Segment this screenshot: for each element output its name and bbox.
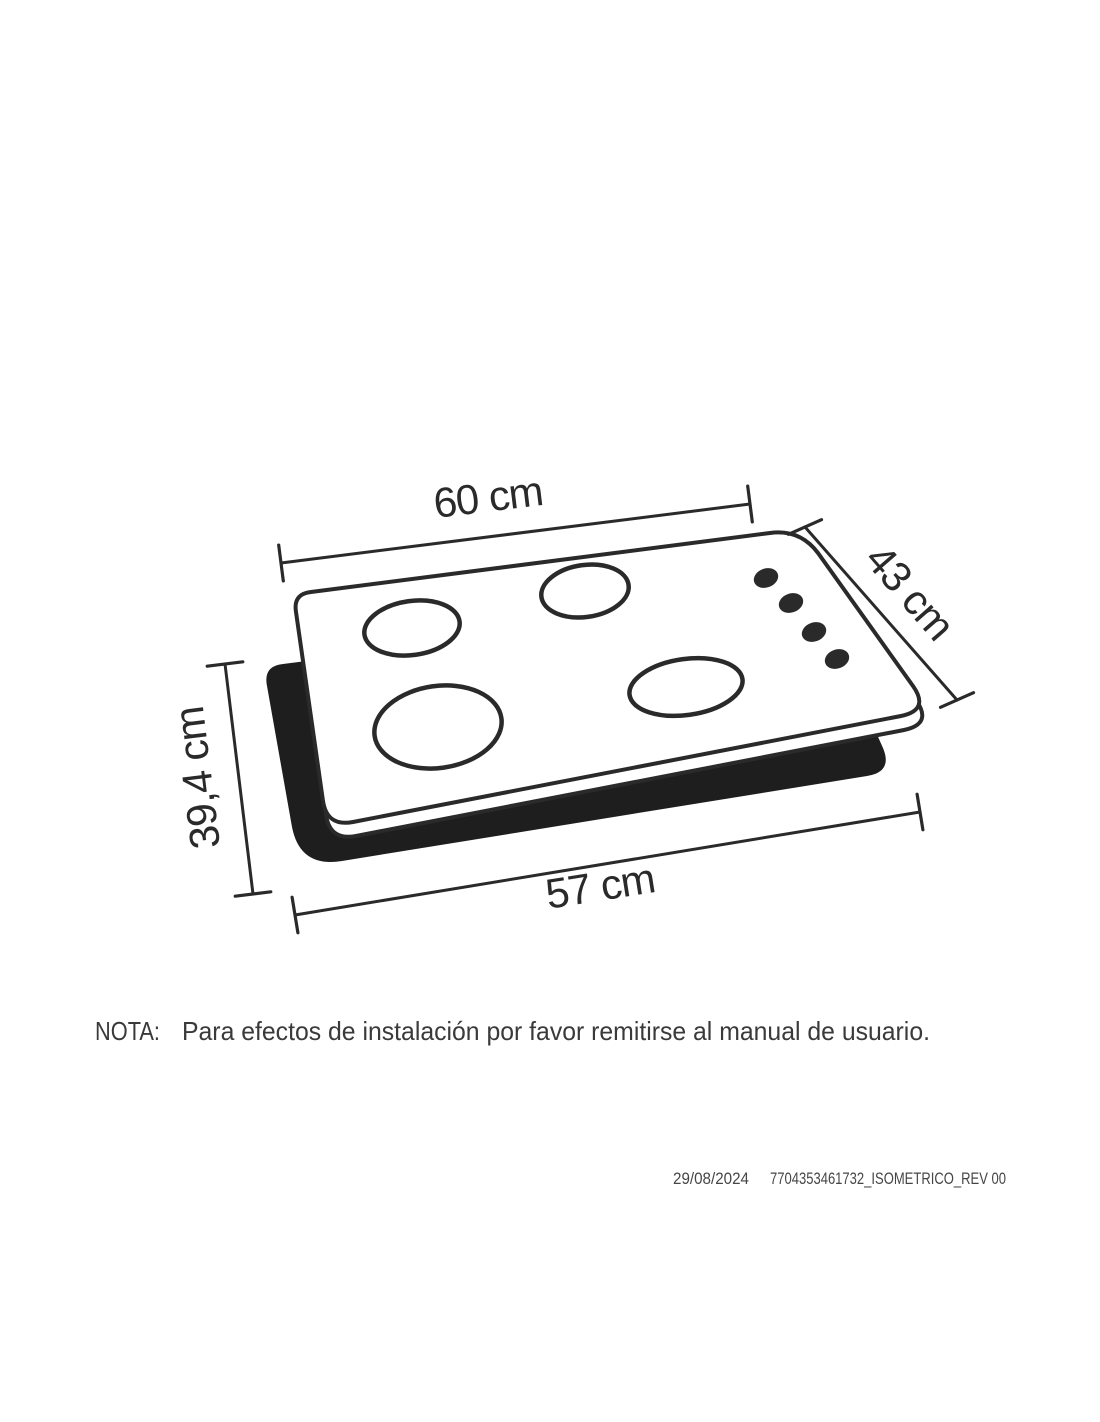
page: 60 cm 43 cm 39,4 cm 57 cm NOTA: Para efe…: [0, 0, 1100, 1422]
dimension-tick: [789, 520, 822, 535]
dimension-tick: [941, 693, 974, 708]
dimension-label-top-width: 60 cm: [431, 467, 545, 527]
installation-note: NOTA: Para efectos de instalación por fa…: [95, 1016, 930, 1046]
isometric-cooktop-diagram: 60 cm 43 cm 39,4 cm 57 cm NOTA: Para efe…: [0, 0, 1100, 1422]
note-label: NOTA:: [95, 1016, 160, 1046]
dimension-line: [225, 664, 253, 894]
document-footer: 29/08/2024 7704353461732_ISOMETRICO_REV …: [673, 1169, 1006, 1188]
footer-doc-id: 7704353461732_ISOMETRICO_REV 00: [770, 1169, 1006, 1188]
dimension-tick: [207, 662, 243, 666]
dimension-label-cutout-depth: 39,4 cm: [165, 704, 229, 851]
dimension-tick: [279, 545, 284, 581]
dimension-cutout-depth: 39,4 cm: [165, 662, 271, 896]
footer-date: 29/08/2024: [673, 1169, 749, 1188]
dimension-tick: [748, 486, 753, 522]
note-text: Para efectos de instalación por favor re…: [182, 1016, 930, 1046]
dimension-tick: [235, 892, 271, 896]
dimension-label-cutout-width: 57 cm: [542, 854, 657, 918]
